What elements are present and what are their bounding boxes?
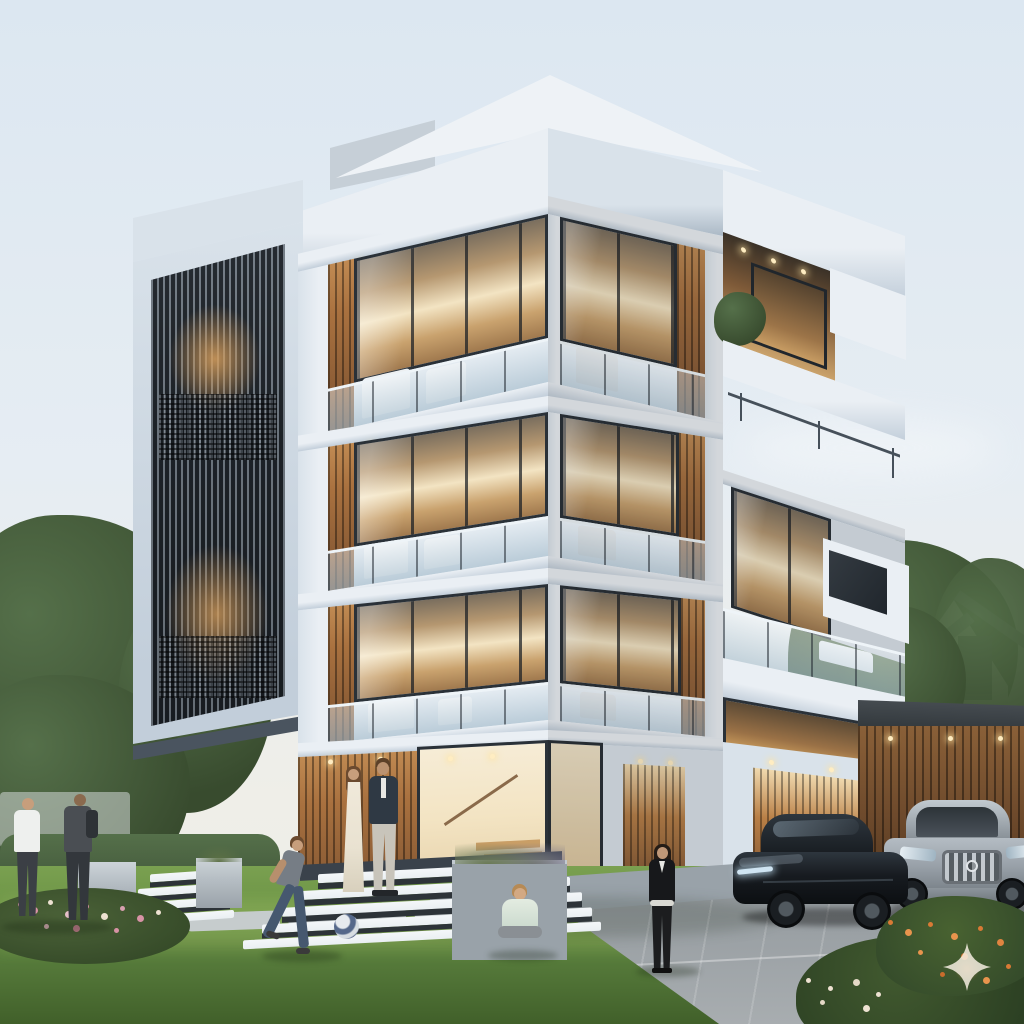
terrace-rail-post <box>818 421 820 449</box>
mercedes-star <box>966 860 978 872</box>
shoes <box>652 968 672 973</box>
corner-pier <box>548 412 560 570</box>
flower-specks-orange <box>888 920 893 925</box>
window-sheen <box>773 819 860 838</box>
downlight <box>741 247 746 254</box>
car-black-sedan <box>733 810 908 930</box>
person-man-grey-shirt <box>56 792 108 932</box>
head <box>74 794 86 806</box>
person-toddler-sitting <box>494 884 546 946</box>
shoes <box>372 890 398 896</box>
person-boy-running <box>266 836 332 962</box>
balcony-opening <box>560 217 705 418</box>
downlight <box>888 736 893 741</box>
downlight <box>998 736 1003 741</box>
planter-cube <box>196 858 242 908</box>
tower-mesh-band <box>159 636 277 698</box>
cloud <box>740 420 1000 476</box>
downlight <box>638 759 643 764</box>
shoe <box>296 948 310 954</box>
facade-right-floor2 <box>548 568 723 748</box>
shirt <box>381 778 386 798</box>
facade-pier <box>298 265 328 454</box>
headlight <box>1005 845 1024 859</box>
legs <box>17 852 38 916</box>
downlight <box>769 760 774 766</box>
legs <box>498 926 542 938</box>
entrance-ceiling-light <box>448 756 453 761</box>
legs <box>652 906 672 970</box>
downlight <box>829 767 834 773</box>
planter-grasses <box>196 846 242 862</box>
legs <box>66 852 90 920</box>
downlight <box>801 268 806 275</box>
interior-stair-rail <box>444 774 519 826</box>
person-man-navy-blazer <box>364 758 406 900</box>
person-woman-black-outfit <box>640 844 686 978</box>
downlight <box>668 760 673 765</box>
head <box>377 762 389 775</box>
planter-lavender <box>455 842 565 864</box>
terrace-rail-post <box>892 448 894 478</box>
jeans-leg <box>293 886 309 949</box>
facade-left-floor2 <box>298 568 548 756</box>
downlight <box>771 257 776 264</box>
head <box>657 847 668 859</box>
facade-pier <box>298 607 328 756</box>
head <box>348 769 359 780</box>
facade-pier <box>705 601 723 749</box>
architectural-render <box>0 0 1024 1024</box>
wheel <box>767 890 805 928</box>
belt <box>650 900 674 906</box>
torso <box>14 810 40 852</box>
head <box>22 798 34 810</box>
backpack <box>86 810 98 838</box>
balcony-opening <box>560 414 705 581</box>
balcony-opening <box>560 585 705 736</box>
person-man-white-shirt <box>8 796 54 930</box>
sparkle-watermark-icon <box>942 942 992 992</box>
facade-pier <box>705 250 723 436</box>
head <box>292 840 303 851</box>
corner-pier <box>548 214 560 399</box>
terrace-rail-post <box>740 393 742 421</box>
tower-louvre-screen <box>151 244 285 726</box>
shoe <box>265 930 280 940</box>
floating-box-opening <box>829 550 887 615</box>
entrance-ceiling-light <box>490 754 495 759</box>
facade-pier <box>298 447 328 608</box>
shadow <box>488 950 558 961</box>
corner-pier <box>548 584 560 731</box>
facade-pier <box>705 437 723 596</box>
football <box>334 914 359 939</box>
facade-right-floor3 <box>548 396 723 596</box>
trousers <box>372 824 396 892</box>
downlight <box>948 736 953 741</box>
window-glazing <box>560 414 679 537</box>
window-glazing <box>560 585 681 696</box>
windshield <box>916 807 998 837</box>
tower-mesh-band <box>159 394 277 460</box>
flower-specks-white <box>806 978 811 983</box>
balcony-opening <box>328 584 548 743</box>
